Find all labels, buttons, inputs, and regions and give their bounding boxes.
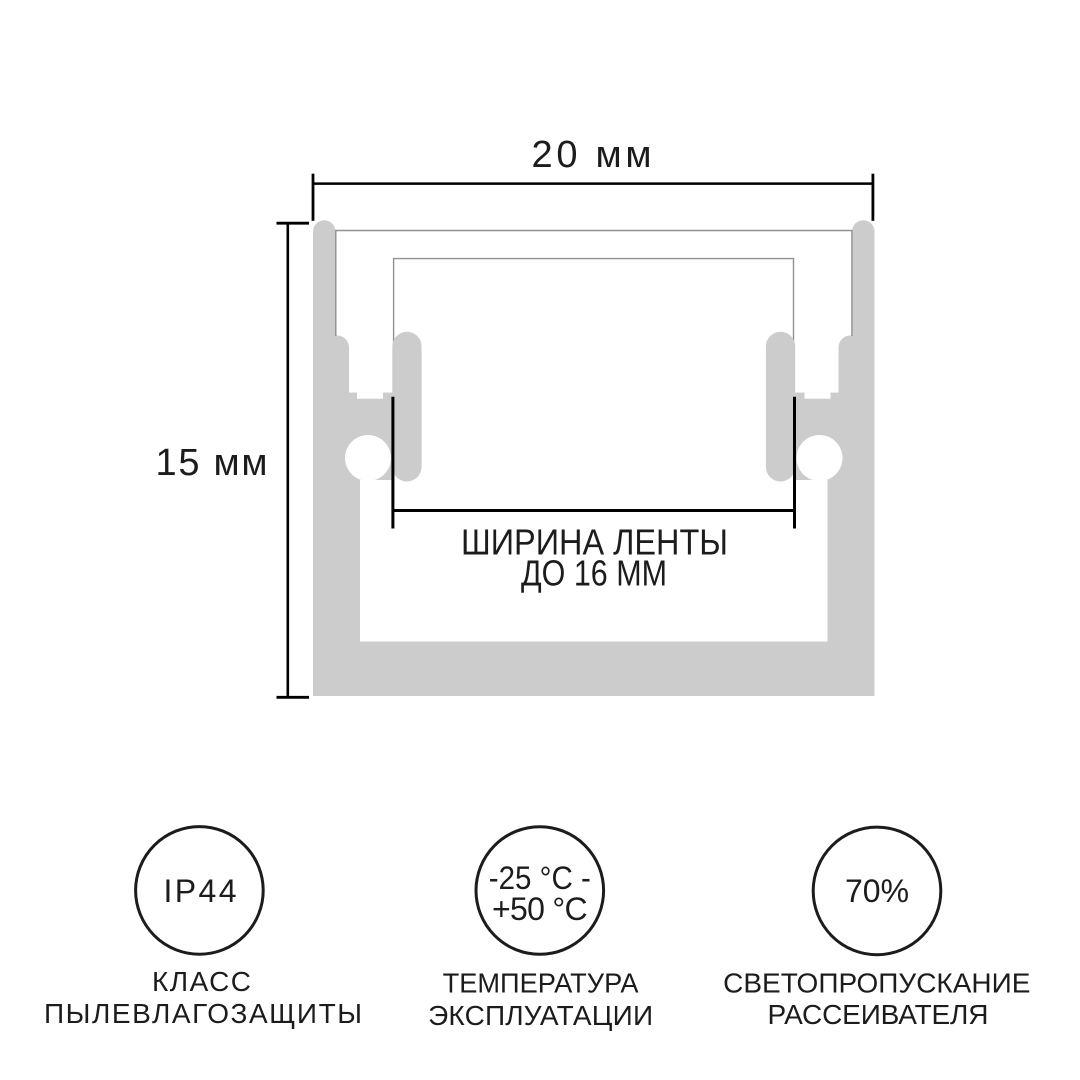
- svg-text:КЛАСС: КЛАСС: [152, 966, 251, 997]
- svg-text:IP44: IP44: [164, 873, 237, 909]
- svg-text:+50 °C: +50 °C: [492, 891, 588, 927]
- svg-text:20 мм: 20 мм: [532, 134, 652, 176]
- svg-text:70%: 70%: [845, 873, 909, 909]
- svg-text:ТЕМПЕРАТУРА: ТЕМПЕРАТУРА: [443, 968, 639, 999]
- svg-text:РАССЕИВАТЕЛЯ: РАССЕИВАТЕЛЯ: [768, 999, 989, 1030]
- svg-text:ЭКСПЛУАТАЦИИ: ЭКСПЛУАТАЦИИ: [428, 1000, 653, 1031]
- svg-text:СВЕТОПРОПУСКАНИЕ: СВЕТОПРОПУСКАНИЕ: [723, 967, 1030, 998]
- svg-text:ПЫЛЕВЛАГОЗАЩИТЫ: ПЫЛЕВЛАГОЗАЩИТЫ: [44, 998, 362, 1029]
- svg-text:ДО 16 ММ: ДО 16 ММ: [521, 553, 667, 594]
- svg-text:15 мм: 15 мм: [156, 442, 268, 484]
